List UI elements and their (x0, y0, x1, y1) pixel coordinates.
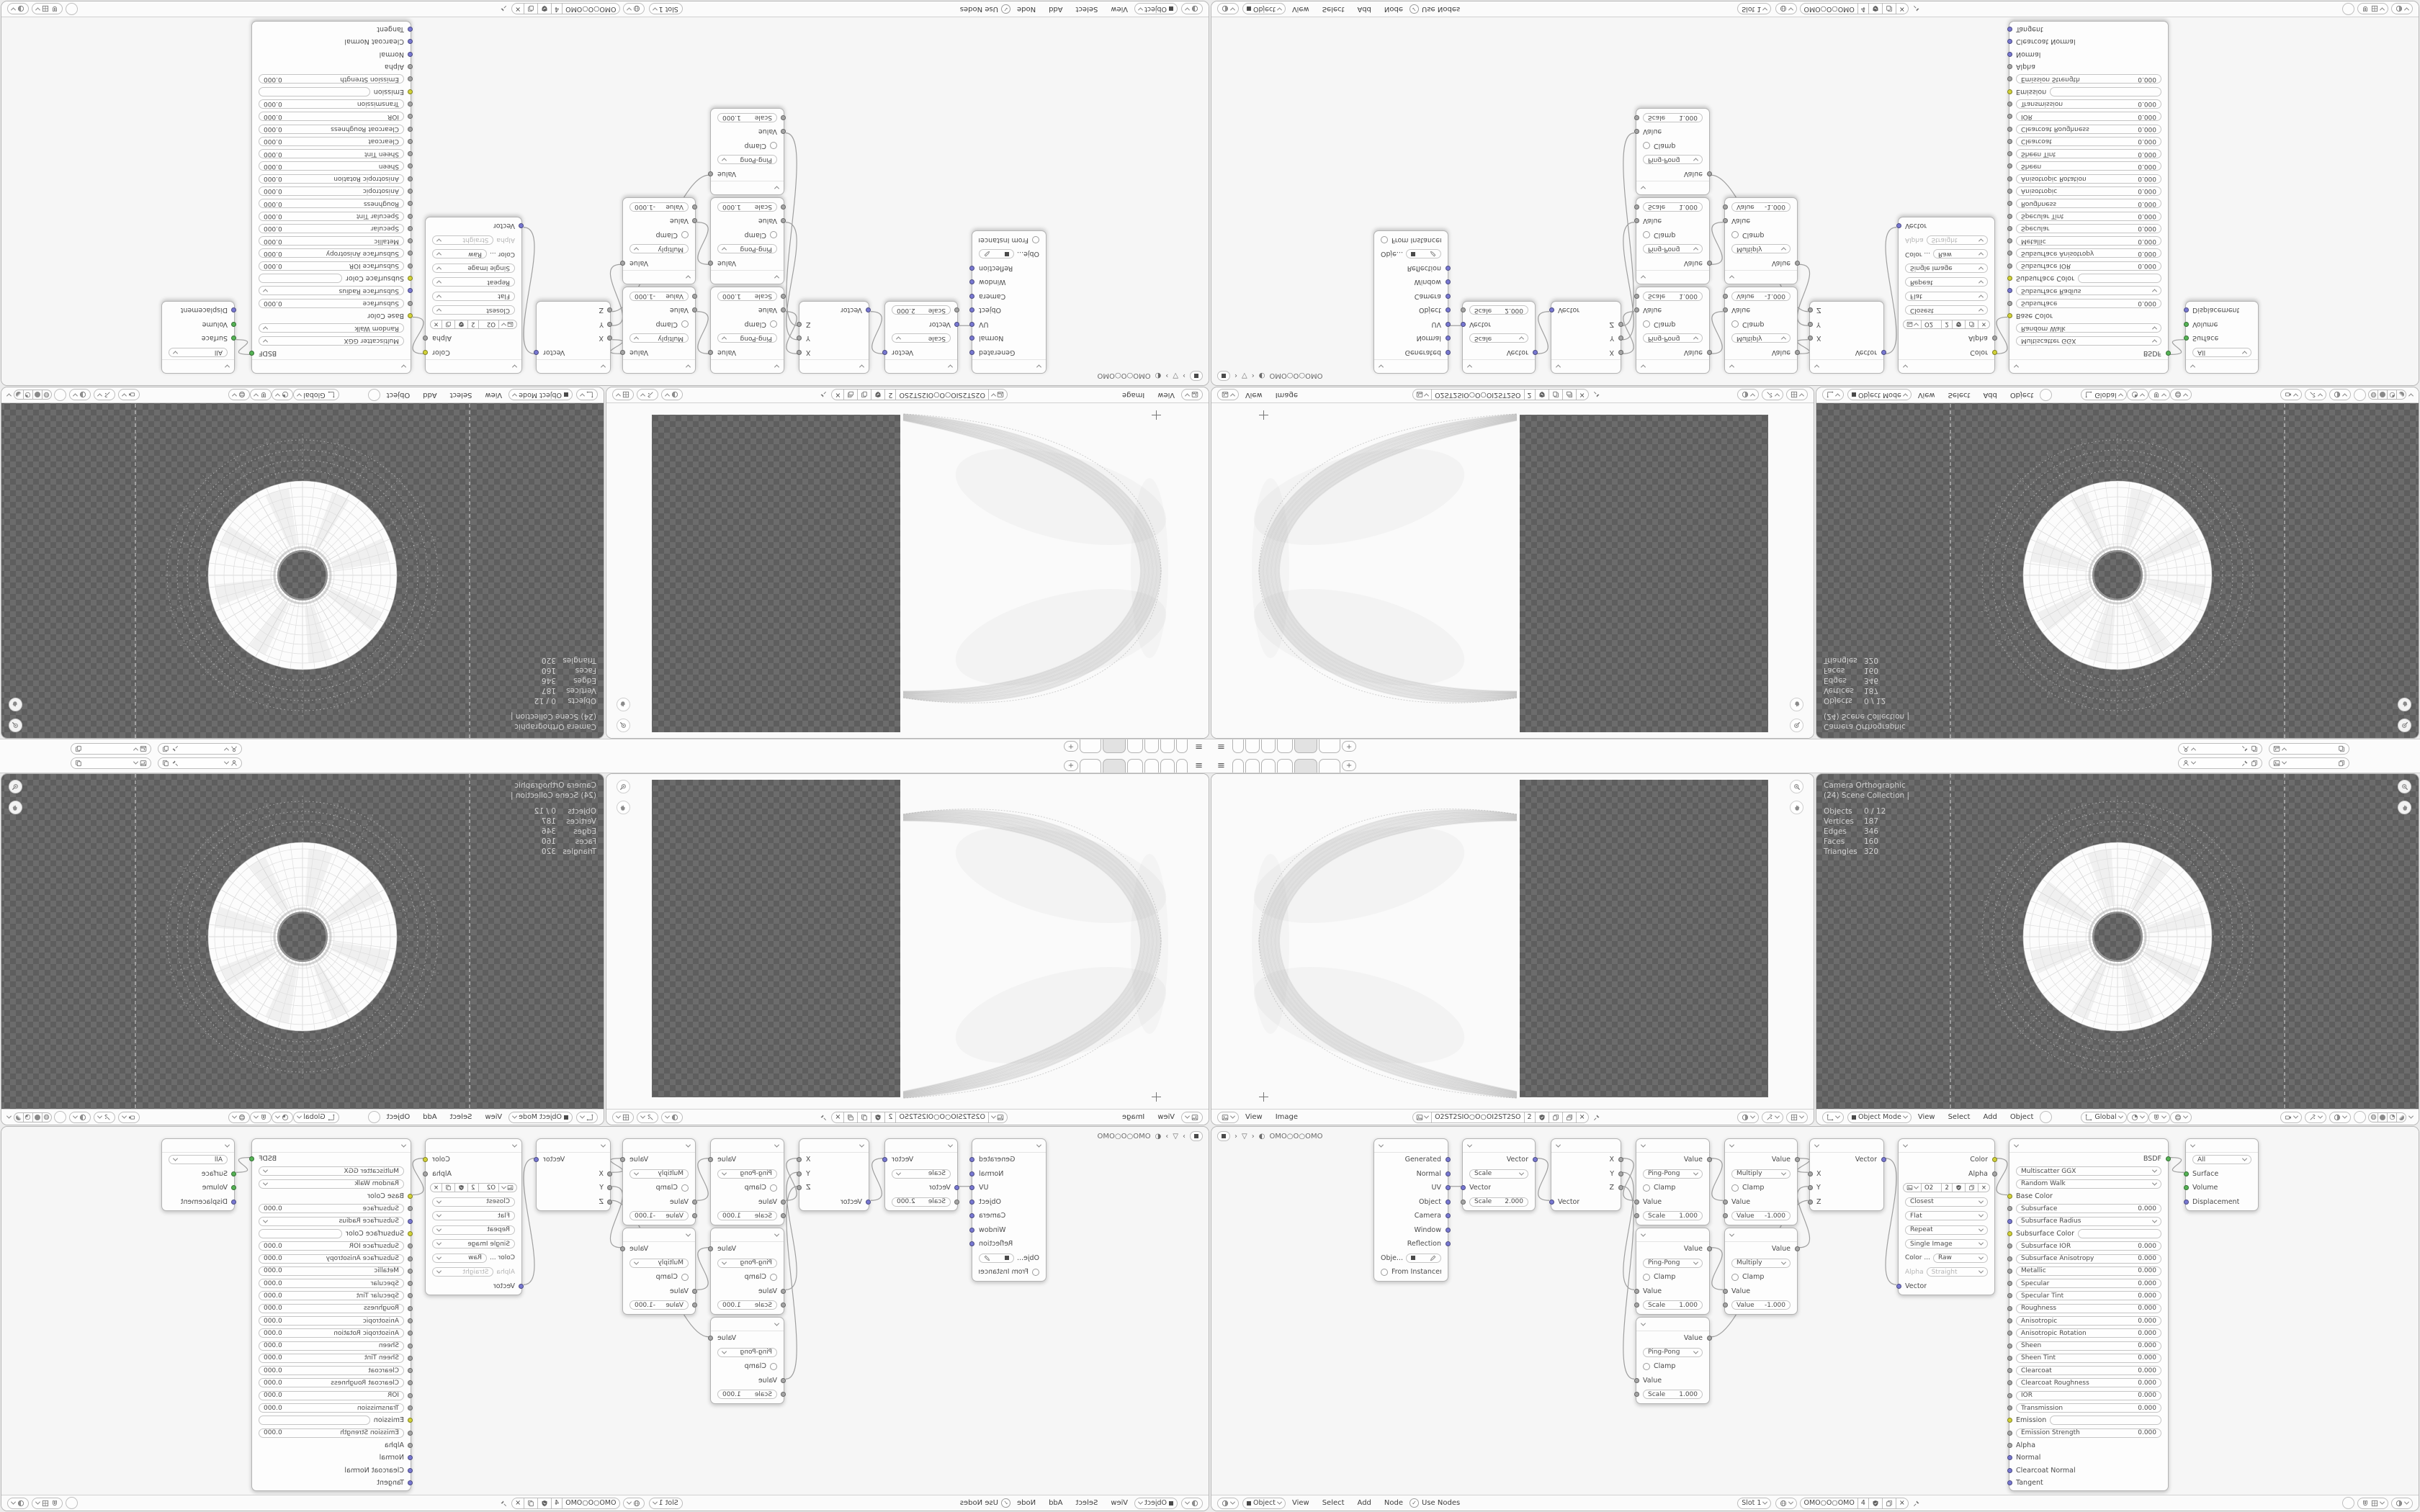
node-checkbox[interactable] (681, 1184, 689, 1192)
menu-add[interactable]: Add (423, 391, 436, 399)
fake-user-button[interactable] (871, 390, 885, 401)
pivot-point-button[interactable] (272, 390, 293, 401)
snapping-button[interactable] (250, 390, 272, 401)
use-nodes-checkbox[interactable]: ✓Use Nodes (960, 4, 1010, 14)
copy-icon[interactable] (162, 746, 169, 753)
shader-node-image-texture[interactable]: ColorAlphaO22×ClosestFlatRepeatSingle Im… (425, 217, 522, 374)
node-color-swatch[interactable] (2050, 87, 2161, 96)
workspace-tab-active[interactable] (1103, 759, 1126, 773)
socket-vector[interactable] (2007, 1468, 2012, 1473)
socket-value[interactable] (2007, 214, 2012, 219)
socket-vector[interactable] (408, 52, 413, 57)
socket-value[interactable] (2007, 226, 2012, 231)
shader-node-math-multiply-2[interactable]: ValueMultiplyClampValueValue-1.000 (1724, 198, 1798, 285)
pan-gizmo[interactable] (9, 801, 22, 814)
node-dropdown[interactable]: Single Image (1905, 264, 1988, 273)
shader-node-math-ping-pong-3[interactable]: ValuePing-PongClampValueScale1.000 (1636, 109, 1710, 196)
socket-color[interactable] (423, 350, 429, 355)
socket-value[interactable] (2007, 1380, 2012, 1385)
node-object-field[interactable] (979, 1254, 1014, 1263)
node-collapse-header[interactable] (1899, 359, 1994, 373)
zoom-gizmo[interactable] (617, 780, 630, 793)
node-checkbox[interactable] (1731, 1274, 1739, 1281)
copy-icon[interactable] (2251, 760, 2258, 767)
shading-solid-button[interactable] (2378, 1112, 2388, 1122)
node-dropdown[interactable]: Multiply (1731, 333, 1791, 343)
socket-vector[interactable] (970, 294, 975, 299)
socket-value[interactable] (781, 204, 786, 210)
shader-node-combine-xyz[interactable]: VectorXYZ (536, 1138, 611, 1211)
material-users-count[interactable]: 4 (551, 4, 563, 15)
socket-value[interactable] (1723, 1289, 1728, 1294)
socket-value[interactable] (955, 307, 960, 312)
node-dropdown[interactable]: All (2192, 1155, 2251, 1164)
node-collapse-header[interactable] (1374, 359, 1448, 373)
socket-value[interactable] (2007, 201, 2012, 206)
node-checkbox[interactable] (1032, 1269, 1039, 1276)
proportional-edit-button[interactable] (2342, 1497, 2354, 1509)
menu-view[interactable]: View (1111, 5, 1128, 13)
node-value-slider[interactable]: Clearcoat0.000 (2016, 1366, 2161, 1375)
node-color-swatch[interactable] (2050, 1416, 2161, 1425)
socket-vector[interactable] (1446, 1171, 1451, 1176)
menu-node[interactable]: Node (1017, 1499, 1036, 1507)
snapping-button[interactable] (2357, 4, 2388, 15)
editor-type-button[interactable] (1181, 1498, 1203, 1509)
socket-value[interactable] (408, 64, 413, 69)
node-dropdown[interactable]: Flat (1905, 292, 1988, 301)
socket-vector[interactable] (955, 322, 960, 327)
node-checkbox[interactable] (1731, 231, 1739, 238)
socket-color[interactable] (408, 313, 413, 318)
socket-value[interactable] (408, 226, 413, 231)
node-value-slider[interactable]: Anisotropic0.000 (259, 186, 404, 196)
node-dropdown[interactable]: Straight (1927, 235, 1988, 245)
shading-rendered-button[interactable] (2396, 1112, 2406, 1122)
pin-icon[interactable] (500, 1500, 507, 1507)
node-dropdown[interactable]: All (2192, 348, 2251, 357)
overlays-button[interactable] (2305, 1112, 2326, 1123)
node-checkbox[interactable] (1643, 1184, 1650, 1192)
socket-shader[interactable] (2184, 336, 2189, 341)
socket-value[interactable] (2007, 1431, 2012, 1436)
shader-node-principled-bsdf[interactable]: BSDFMultiscatter GGXRandom WalkBase Colo… (251, 21, 411, 374)
socket-value[interactable] (408, 1368, 413, 1373)
socket-vector[interactable] (2007, 27, 2012, 32)
socket-value[interactable] (2007, 139, 2012, 144)
socket-value[interactable] (2007, 238, 2012, 243)
socket-vector[interactable] (534, 350, 539, 355)
shader-node-math-multiply-2[interactable]: ValueMultiplyClampValueValue-1.000 (622, 198, 696, 285)
socket-value[interactable] (408, 1281, 413, 1286)
socket-value[interactable] (608, 1171, 613, 1176)
copy-image-button[interactable] (1965, 320, 1978, 329)
menu-select[interactable]: Select (1948, 391, 1971, 399)
add-workspace-button[interactable]: + (1342, 741, 1356, 752)
fake-user-button[interactable] (1868, 1498, 1883, 1509)
socket-vector[interactable] (970, 266, 975, 271)
socket-value[interactable] (408, 1269, 413, 1274)
zoom-gizmo[interactable] (2398, 719, 2411, 732)
socket-value[interactable] (709, 1246, 714, 1251)
view-layer-selector[interactable] (71, 744, 151, 755)
shader-node-principled-bsdf[interactable]: BSDFMultiscatter GGXRandom WalkBase Colo… (251, 1138, 411, 1491)
socket-value[interactable] (2007, 1256, 2012, 1261)
socket-vector[interactable] (1446, 1185, 1451, 1190)
xray-button[interactable] (69, 1112, 91, 1123)
socket-value[interactable] (2007, 1356, 2012, 1361)
node-value-slider[interactable]: Specular0.000 (259, 1279, 404, 1288)
socket-vector[interactable] (1881, 350, 1886, 355)
node-value-slider[interactable]: Anisotropic0.000 (259, 1316, 404, 1326)
socket-vector[interactable] (1446, 266, 1451, 271)
node-value-slider[interactable]: Scale1.000 (717, 1300, 777, 1310)
pan-gizmo[interactable] (2398, 801, 2411, 814)
node-dropdown[interactable]: Straight (432, 1267, 493, 1277)
socket-value[interactable] (1618, 336, 1623, 341)
workspace-tab[interactable] (1160, 759, 1175, 773)
socket-shader[interactable] (2166, 351, 2171, 356)
node-canvas-bg[interactable]: › ▽ › ◐ OMO○O○OMO GeneratedNormalUVObjec… (1211, 1127, 2419, 1495)
socket-value[interactable] (1461, 307, 1466, 312)
socket-vector[interactable] (1461, 1185, 1466, 1190)
node-dropdown[interactable]: Closest (1905, 1197, 1988, 1207)
menu-view[interactable]: View (1918, 1113, 1935, 1121)
pin-icon[interactable] (2241, 760, 2249, 767)
node-collapse-header[interactable] (1636, 270, 1709, 284)
node-collapse-header[interactable] (162, 359, 234, 373)
menu-view[interactable]: View (1292, 1499, 1309, 1507)
node-collapse-header[interactable] (2186, 1139, 2258, 1153)
node-dropdown[interactable]: Multiply (629, 333, 689, 343)
node-dropdown[interactable]: Ping-Pong (717, 244, 777, 253)
node-collapse-header[interactable] (885, 359, 957, 373)
shading-solid-button[interactable] (32, 1112, 42, 1122)
snapping-button[interactable] (32, 4, 63, 15)
socket-value[interactable] (408, 102, 413, 107)
node-value-slider[interactable]: Value-1.000 (1731, 292, 1791, 301)
node-color-swatch[interactable] (2078, 274, 2161, 283)
fake-user-button[interactable] (1952, 320, 1966, 329)
viewport-canvas[interactable]: Camera Orthographic (24) Scene Collectio… (1816, 774, 2419, 1109)
node-checkbox[interactable] (681, 1274, 689, 1281)
shading-material-button[interactable] (2387, 1112, 2397, 1122)
shader-node-principled-bsdf[interactable]: BSDFMultiscatter GGXRandom WalkBase Colo… (2009, 21, 2169, 374)
socket-shader[interactable] (250, 1156, 255, 1161)
workspace-tab[interactable] (1245, 759, 1260, 773)
image-name-short[interactable]: O2 (478, 1183, 499, 1192)
socket-value[interactable] (408, 176, 413, 181)
unlink-image-button[interactable]: × (1978, 320, 1990, 329)
image-name-short[interactable]: O2 (1921, 1183, 1942, 1192)
node-dropdown[interactable]: Single Image (432, 1239, 515, 1248)
node-vector-dropdown[interactable]: Subsurface Radius (2016, 1217, 2161, 1226)
socket-vector[interactable] (1446, 1241, 1451, 1246)
shading-dropdown[interactable] (6, 393, 12, 398)
node-collapse-header[interactable] (885, 1139, 957, 1153)
node-value-slider[interactable]: Value-1.000 (629, 1211, 689, 1220)
image-editor-canvas[interactable] (1211, 774, 1814, 1109)
socket-vector[interactable] (970, 1185, 975, 1190)
overlays-button[interactable] (1786, 390, 1808, 401)
node-value-slider[interactable]: Sheen Tint0.000 (2016, 149, 2161, 158)
new-image-button[interactable] (857, 390, 871, 401)
snapping-button[interactable] (2148, 1112, 2170, 1123)
add-workspace-button[interactable]: + (1064, 760, 1078, 771)
node-dropdown[interactable]: Raw (432, 1254, 487, 1263)
copy-image-button[interactable] (442, 1183, 455, 1192)
socket-value[interactable] (1723, 294, 1728, 299)
unpack-image-button[interactable] (1562, 390, 1577, 401)
copy-image-button[interactable] (1965, 1183, 1978, 1192)
node-color-swatch[interactable] (259, 87, 370, 96)
menu-add[interactable]: Add (1983, 391, 1996, 399)
socket-value[interactable] (621, 261, 626, 266)
editor-type-button[interactable] (1217, 1498, 1239, 1509)
pin-icon[interactable] (500, 6, 507, 13)
socket-shader[interactable] (2166, 1156, 2171, 1161)
display-channels-button[interactable] (661, 1112, 683, 1123)
node-dropdown[interactable]: Flat (1905, 1211, 1988, 1220)
show-gizmo-button[interactable] (118, 1112, 140, 1123)
copy-icon[interactable] (2251, 746, 2258, 753)
socket-value[interactable] (693, 1302, 698, 1308)
transform-orientation[interactable]: Global (293, 390, 339, 401)
socket-vector[interactable] (970, 1200, 975, 1205)
node-object-field[interactable] (1406, 249, 1441, 258)
snapping-button[interactable] (2148, 390, 2170, 401)
node-value-slider[interactable]: Specular Tint0.000 (259, 1291, 404, 1300)
node-canvas-bg[interactable]: › ▽ › ◐ OMO○O○OMO GeneratedNormalUVObjec… (1211, 17, 2419, 385)
node-collapse-header[interactable] (1636, 359, 1709, 373)
workspace-tab[interactable] (1277, 739, 1293, 753)
socket-vector[interactable] (866, 1200, 871, 1205)
new-material-button[interactable] (524, 4, 538, 15)
node-checkbox[interactable] (1643, 142, 1650, 149)
menu-image[interactable]: Image (1276, 391, 1298, 399)
shader-node-math-ping-pong-3[interactable]: ValuePing-PongClampValueScale1.000 (710, 1317, 784, 1404)
node-checkbox[interactable] (770, 1363, 777, 1370)
material-name-field[interactable]: OMO○O○OMO (1800, 1498, 1857, 1509)
shader-node-separate-xyz[interactable]: XYZVector (1551, 301, 1621, 374)
socket-value[interactable] (709, 1336, 714, 1341)
socket-value[interactable] (1634, 1289, 1639, 1294)
image-users-count[interactable]: 2 (1524, 1112, 1536, 1123)
node-value-slider[interactable]: Value-1.000 (629, 202, 689, 212)
node-collapse-header[interactable] (711, 1318, 784, 1331)
socket-value[interactable] (709, 171, 714, 176)
fake-user-button[interactable] (537, 1498, 552, 1509)
node-checkbox[interactable] (770, 142, 777, 149)
menu-add[interactable]: Add (1983, 1113, 1996, 1121)
socket-value[interactable] (2007, 189, 2012, 194)
new-image-button[interactable] (1549, 390, 1563, 401)
shader-node-separate-xyz[interactable]: XYZVector (1551, 1138, 1621, 1211)
pin-icon[interactable] (1913, 6, 1920, 13)
node-dropdown[interactable]: Single Image (1905, 1239, 1988, 1248)
workspace-tab[interactable] (1319, 759, 1340, 773)
menu-image[interactable]: Image (1276, 1113, 1298, 1121)
scene-selector[interactable] (2178, 744, 2262, 755)
node-collapse-header[interactable] (711, 181, 784, 194)
socket-shader[interactable] (2184, 322, 2189, 327)
socket-shader[interactable] (232, 1171, 237, 1176)
display-channels-button[interactable] (1737, 1112, 1759, 1123)
menu-image[interactable]: Image (1122, 1113, 1144, 1121)
show-gizmo-button[interactable] (2280, 1112, 2302, 1123)
socket-value[interactable] (621, 1157, 626, 1162)
image-users-count[interactable]: 2 (1941, 320, 1952, 329)
socket-vector[interactable] (2007, 288, 2012, 293)
socket-value[interactable] (1618, 322, 1623, 327)
app-menu-icon[interactable]: ≡ (1217, 761, 1225, 770)
overlays-button[interactable] (612, 1112, 634, 1123)
socket-value[interactable] (693, 294, 698, 299)
proportional-edit-button[interactable] (66, 3, 78, 15)
socket-value[interactable] (1795, 1246, 1800, 1251)
node-checkbox[interactable] (1381, 1269, 1388, 1276)
socket-value[interactable] (2007, 64, 2012, 69)
zoom-gizmo[interactable] (9, 719, 22, 732)
material-users-count[interactable]: 4 (551, 1498, 563, 1509)
menu-add[interactable]: Add (1049, 1499, 1062, 1507)
pin-icon[interactable] (1593, 1114, 1600, 1121)
node-value-slider[interactable]: Value-1.000 (1731, 202, 1791, 212)
menu-view[interactable]: View (1157, 391, 1175, 399)
shader-node-math-ping-pong-3[interactable]: ValuePing-PongClampValueScale1.000 (710, 109, 784, 196)
menu-add[interactable]: Add (423, 1113, 436, 1121)
node-value-slider[interactable]: Sheen Tint0.000 (259, 1354, 404, 1363)
node-dropdown[interactable]: All (169, 1155, 228, 1164)
socket-shader[interactable] (232, 336, 237, 341)
workspace-tab[interactable] (1261, 759, 1276, 773)
node-collapse-header[interactable] (1725, 1139, 1797, 1153)
socket-vector[interactable] (1446, 322, 1451, 327)
socket-vector[interactable] (534, 1157, 539, 1162)
pan-gizmo[interactable] (1790, 801, 1803, 814)
material-name-field[interactable]: OMO○O○OMO (562, 1498, 619, 1509)
menu-select[interactable]: Select (450, 1113, 472, 1121)
workspace-tab[interactable] (1232, 739, 1244, 753)
viewport-canvas[interactable]: Camera Orthographic (24) Scene Collectio… (1816, 403, 2419, 738)
shader-node-principled-bsdf[interactable]: BSDFMultiscatter GGXRandom WalkBase Colo… (2009, 1138, 2169, 1491)
menu-select[interactable]: Select (450, 391, 472, 399)
node-value-slider[interactable]: Transmission0.000 (2016, 99, 2161, 109)
socket-value[interactable] (1723, 307, 1728, 312)
socket-value[interactable] (408, 1206, 413, 1211)
node-dropdown[interactable]: Straight (432, 235, 493, 245)
shader-node-image-texture[interactable]: ColorAlphaO22×ClosestFlatRepeatSingle Im… (425, 1138, 522, 1295)
node-value-slider[interactable]: Subsurface0.000 (2016, 1204, 2161, 1213)
node-collapse-header[interactable] (972, 1139, 1046, 1153)
socket-value[interactable] (2007, 1281, 2012, 1286)
node-dropdown[interactable]: Raw (1933, 249, 1988, 258)
socket-value[interactable] (781, 129, 786, 134)
socket-vector[interactable] (1446, 350, 1451, 355)
socket-value[interactable] (408, 301, 413, 306)
socket-vector[interactable] (970, 1157, 975, 1162)
socket-value[interactable] (2007, 1243, 2012, 1248)
scene-name-field[interactable] (181, 760, 223, 767)
socket-color[interactable] (408, 1231, 413, 1236)
socket-value[interactable] (797, 1171, 802, 1176)
node-value-slider[interactable]: Scale2.000 (892, 1197, 951, 1207)
unlink-material-button[interactable]: × (1896, 4, 1909, 15)
shading-wireframe-button[interactable] (2368, 1112, 2378, 1122)
socket-value[interactable] (1707, 261, 1712, 266)
workspace-tab-active[interactable] (1103, 739, 1126, 753)
mode-selector[interactable]: Object Mode (508, 1112, 573, 1123)
scene-selector[interactable] (2178, 757, 2262, 769)
menu-image[interactable]: Image (1122, 391, 1144, 399)
overlays-button[interactable] (94, 390, 115, 401)
node-value-slider[interactable]: Transmission0.000 (2016, 1403, 2161, 1413)
node-collapse-header[interactable] (1810, 359, 1883, 373)
node-value-slider[interactable]: Clearcoat0.000 (259, 1366, 404, 1375)
world-object-toggle[interactable] (623, 1498, 645, 1509)
node-dropdown[interactable]: Multiply (1731, 244, 1791, 253)
node-value-slider[interactable]: Specular0.000 (259, 224, 404, 233)
gizmos-button[interactable] (637, 1112, 658, 1123)
socket-value[interactable] (408, 127, 413, 132)
socket-value[interactable] (408, 76, 413, 81)
shading-material-button[interactable] (2387, 390, 2397, 400)
node-value-slider[interactable]: Scale2.000 (892, 305, 951, 315)
socket-value[interactable] (693, 218, 698, 223)
shading-material-button[interactable] (23, 390, 33, 400)
snapping-button[interactable] (2357, 1498, 2388, 1509)
menu-select[interactable]: Select (1075, 1499, 1098, 1507)
socket-value[interactable] (797, 1157, 802, 1162)
node-collapse-header[interactable] (1551, 359, 1621, 373)
image-editor-canvas[interactable] (606, 403, 1209, 738)
socket-value[interactable] (408, 1405, 413, 1410)
node-dropdown[interactable]: Random Walk (2016, 323, 2161, 333)
shader-node-math-ping-pong-1[interactable]: ValuePing-PongClampValueScale1.000 (1636, 287, 1710, 374)
node-value-slider[interactable]: Anisotropic Rotation0.000 (259, 174, 404, 184)
app-menu-icon[interactable]: ≡ (1195, 742, 1203, 751)
socket-value[interactable] (408, 264, 413, 269)
pivot-point-button[interactable] (2127, 1112, 2148, 1123)
menu-add[interactable]: Add (1358, 5, 1371, 13)
socket-value[interactable] (2007, 1405, 2012, 1410)
socket-value[interactable] (408, 1431, 413, 1436)
socket-vector[interactable] (970, 1228, 975, 1233)
workspace-tab-active[interactable] (1294, 739, 1317, 753)
socket-value[interactable] (1634, 218, 1639, 223)
socket-vector[interactable] (1549, 307, 1554, 312)
copy-icon[interactable] (75, 760, 82, 767)
menu-node[interactable]: Node (1384, 1499, 1403, 1507)
unlink-material-button[interactable]: × (511, 4, 524, 15)
node-checkbox[interactable] (1643, 320, 1650, 328)
browse-image-button[interactable] (498, 320, 517, 329)
material-slot-selector[interactable]: Slot 1 (1737, 4, 1771, 15)
socket-vector[interactable] (1549, 1200, 1554, 1205)
view-layer-name-field[interactable] (84, 746, 132, 753)
node-value-slider[interactable]: IOR0.000 (259, 1391, 404, 1400)
menu-select[interactable]: Select (1075, 5, 1098, 13)
socket-value[interactable] (1808, 1171, 1813, 1176)
socket-value[interactable] (1808, 336, 1813, 341)
view-layer-name-field[interactable] (2288, 746, 2336, 753)
unlink-image-button[interactable]: × (430, 320, 442, 329)
socket-vector[interactable] (2007, 1480, 2012, 1485)
image-name-field[interactable]: O2ST2SIO○O○OI2ST2SO (895, 1112, 988, 1123)
node-value-slider[interactable]: Emission Strength0.000 (259, 74, 404, 84)
node-dropdown[interactable]: Repeat (1905, 1225, 1988, 1235)
menu-node[interactable]: Node (1384, 5, 1403, 13)
